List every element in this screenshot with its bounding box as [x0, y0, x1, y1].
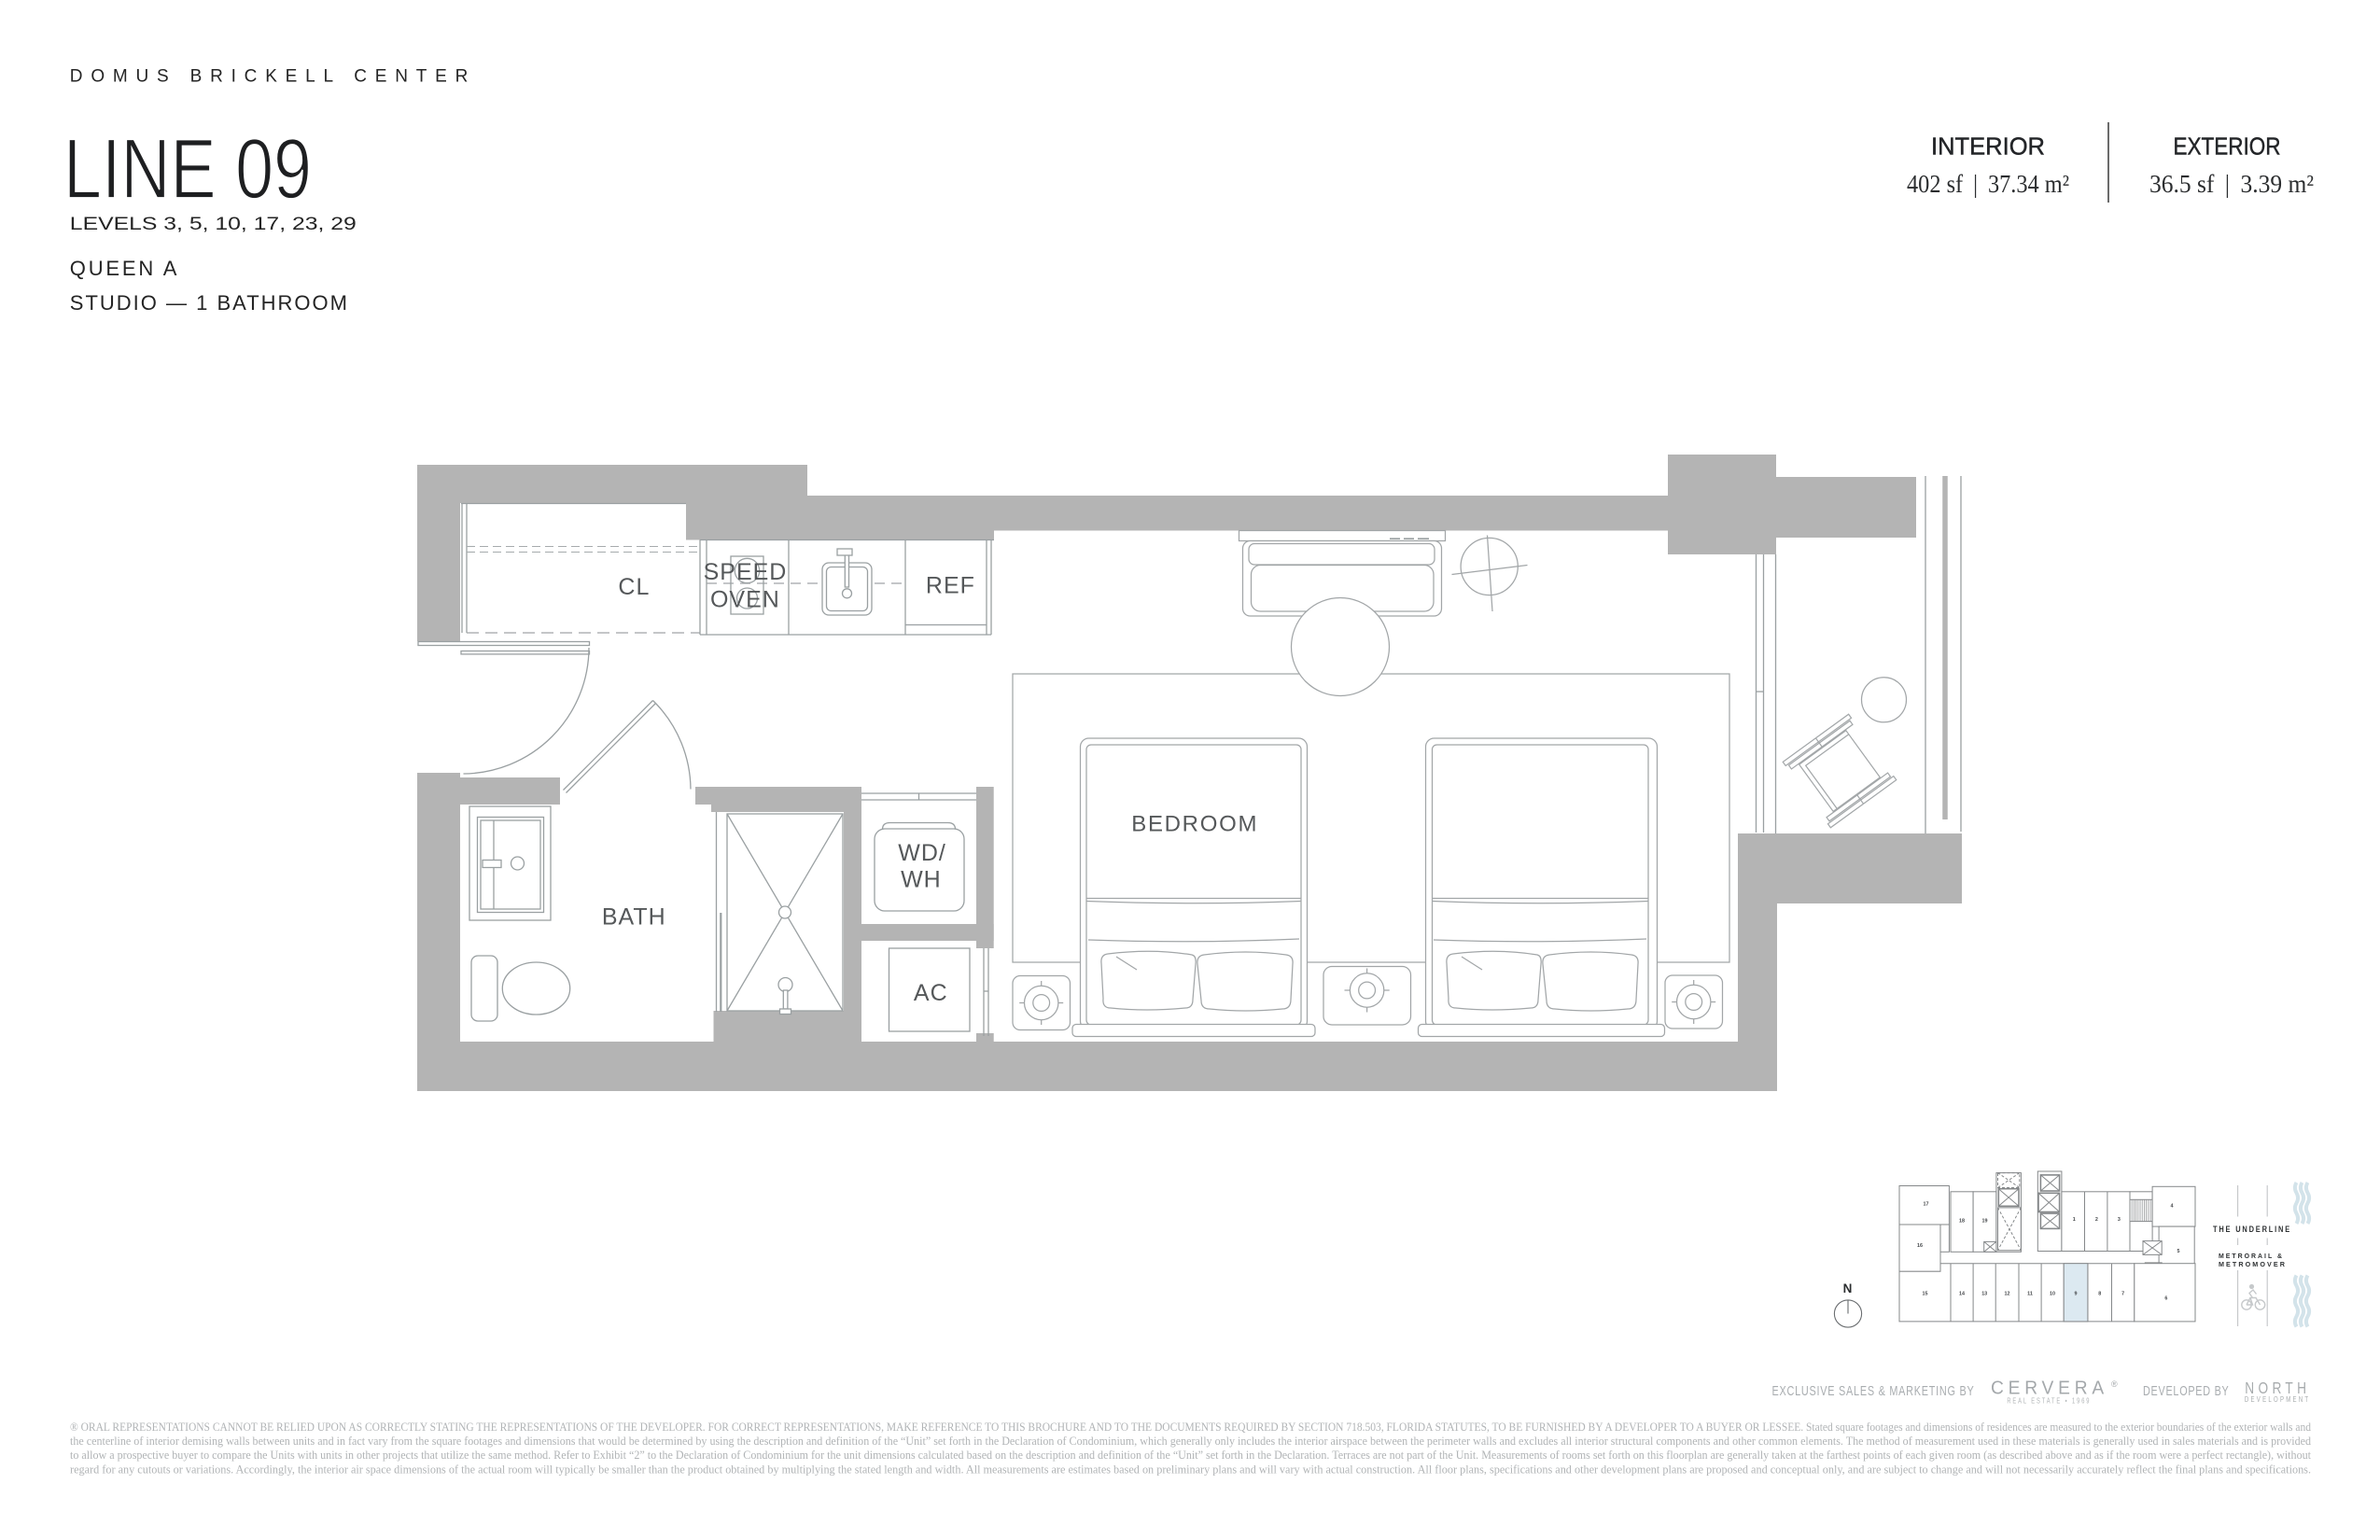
svg-text:EXCLUSIVE SALES & MARKETING BY: EXCLUSIVE SALES & MARKETING BY — [1772, 1384, 1975, 1399]
svg-text:® ORAL REPRESENTATIONS CANNOT: ® ORAL REPRESENTATIONS CANNOT BE RELIED … — [70, 1421, 2312, 1434]
svg-text:9: 9 — [2075, 1292, 2078, 1297]
svg-text:17: 17 — [1924, 1202, 1929, 1208]
svg-text:12: 12 — [2005, 1292, 2010, 1297]
svg-text:REF: REF — [926, 572, 975, 598]
svg-text:LINE 09: LINE 09 — [63, 122, 312, 217]
svg-text:5: 5 — [2177, 1249, 2180, 1254]
svg-text:10: 10 — [2050, 1292, 2055, 1297]
svg-text:36.5 sf | 3.39 m²: 36.5 sf | 3.39 m² — [2149, 170, 2314, 198]
svg-text:CL: CL — [618, 574, 650, 600]
svg-text:regard for any cutouts or vari: regard for any cutouts or variations. Ac… — [70, 1463, 2311, 1476]
svg-text:DEVELOPMENT: DEVELOPMENT — [2245, 1395, 2311, 1404]
svg-text:1: 1 — [2073, 1217, 2076, 1223]
svg-text:to allow a prospective buyer t: to allow a prospective buyer to compare … — [70, 1449, 2312, 1462]
svg-text:LEVELS 3, 5, 10, 17, 23, 29: LEVELS 3, 5, 10, 17, 23, 29 — [70, 215, 357, 234]
svg-text:CERVERA: CERVERA — [1991, 1379, 2108, 1399]
svg-text:SPEED: SPEED — [704, 559, 788, 585]
svg-text:BATH: BATH — [602, 904, 666, 931]
svg-text:4: 4 — [2171, 1204, 2174, 1210]
svg-text:DOMUS BRICKELL CENTER: DOMUS BRICKELL CENTER — [70, 66, 476, 86]
svg-text:13: 13 — [1981, 1292, 1987, 1297]
svg-text:WD/: WD/ — [898, 840, 946, 866]
svg-text:BEDROOM: BEDROOM — [1131, 811, 1258, 836]
svg-text:the centerline of interior dem: the centerline of interior demising wall… — [70, 1435, 2312, 1448]
svg-text:18: 18 — [1959, 1219, 1965, 1225]
svg-text:8: 8 — [2098, 1292, 2101, 1297]
svg-text:DEVELOPED BY: DEVELOPED BY — [2143, 1384, 2230, 1399]
svg-text:THE UNDERLINE: THE UNDERLINE — [2213, 1225, 2291, 1234]
svg-text:2: 2 — [2095, 1217, 2098, 1223]
svg-text:3: 3 — [2118, 1217, 2121, 1223]
svg-text:402 sf | 37.34 m²: 402 sf | 37.34 m² — [1907, 170, 2069, 198]
svg-text:REAL ESTATE • 1969: REAL ESTATE • 1969 — [2007, 1396, 2091, 1405]
svg-text:STUDIO — 1 BATHROOM: STUDIO — 1 BATHROOM — [70, 291, 349, 315]
svg-text:11: 11 — [2027, 1292, 2033, 1297]
svg-text:METROMOVER: METROMOVER — [2219, 1262, 2287, 1268]
svg-text:OVEN: OVEN — [710, 587, 780, 613]
svg-text:AC: AC — [914, 980, 948, 1006]
svg-text:INTERIOR: INTERIOR — [1931, 132, 2045, 160]
svg-text:WH: WH — [901, 866, 942, 892]
svg-text:QUEEN A: QUEEN A — [70, 257, 179, 280]
svg-text:15: 15 — [1923, 1292, 1928, 1297]
svg-text:7: 7 — [2121, 1292, 2124, 1297]
svg-text:®: ® — [2111, 1379, 2118, 1389]
svg-text:19: 19 — [1982, 1219, 1988, 1225]
svg-text:N: N — [1843, 1281, 1853, 1295]
svg-text:14: 14 — [1959, 1292, 1965, 1297]
svg-text:METRORAIL &: METRORAIL & — [2219, 1253, 2284, 1260]
svg-text:16: 16 — [1917, 1243, 1923, 1249]
svg-text:EXTERIOR: EXTERIOR — [2174, 132, 2281, 160]
svg-text:6: 6 — [2164, 1296, 2167, 1302]
